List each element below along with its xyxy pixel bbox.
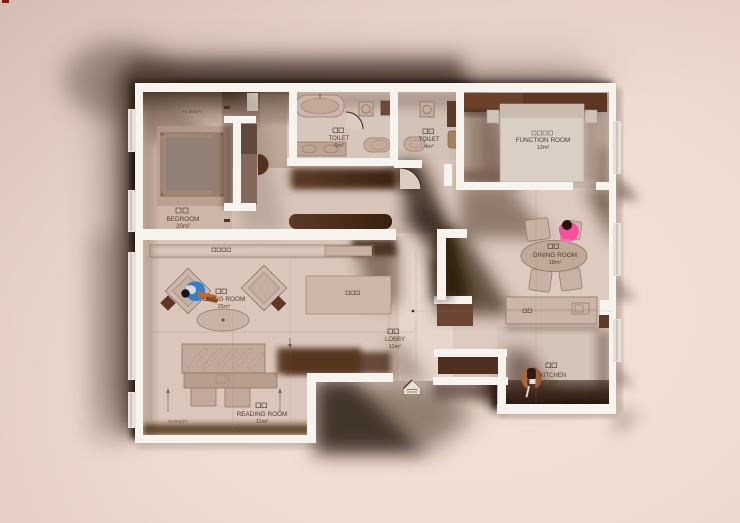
svg-text:+0.000(F): +0.000(F) — [167, 419, 188, 424]
svg-text:11m²: 11m² — [256, 419, 268, 425]
svg-text:3m²: 3m² — [548, 380, 558, 386]
svg-text:18m²: 18m² — [549, 260, 562, 266]
svg-text:LIVING ROOM: LIVING ROOM — [203, 296, 246, 303]
svg-text:11m²: 11m² — [389, 344, 401, 350]
svg-text:LOBBY: LOBBY — [385, 337, 405, 343]
svg-text:12m²: 12m² — [537, 145, 550, 151]
svg-text:20m²: 20m² — [176, 224, 190, 230]
svg-text:FUNCTION ROOM: FUNCTION ROOM — [516, 137, 571, 144]
svg-text:6m²: 6m² — [334, 143, 344, 149]
svg-text:TOILET: TOILET — [329, 136, 350, 142]
svg-text:+0.000(F): +0.000(F) — [182, 109, 203, 114]
svg-text:4m²: 4m² — [424, 144, 434, 150]
svg-text:KITCHEN: KITCHEN — [540, 373, 566, 379]
svg-text:BEDROOM: BEDROOM — [166, 216, 199, 223]
svg-text:TOILET: TOILET — [419, 137, 440, 143]
svg-text:DINING ROOM: DINING ROOM — [533, 252, 577, 259]
svg-text:25m²: 25m² — [218, 304, 231, 310]
svg-text:READING ROOM: READING ROOM — [237, 411, 288, 418]
